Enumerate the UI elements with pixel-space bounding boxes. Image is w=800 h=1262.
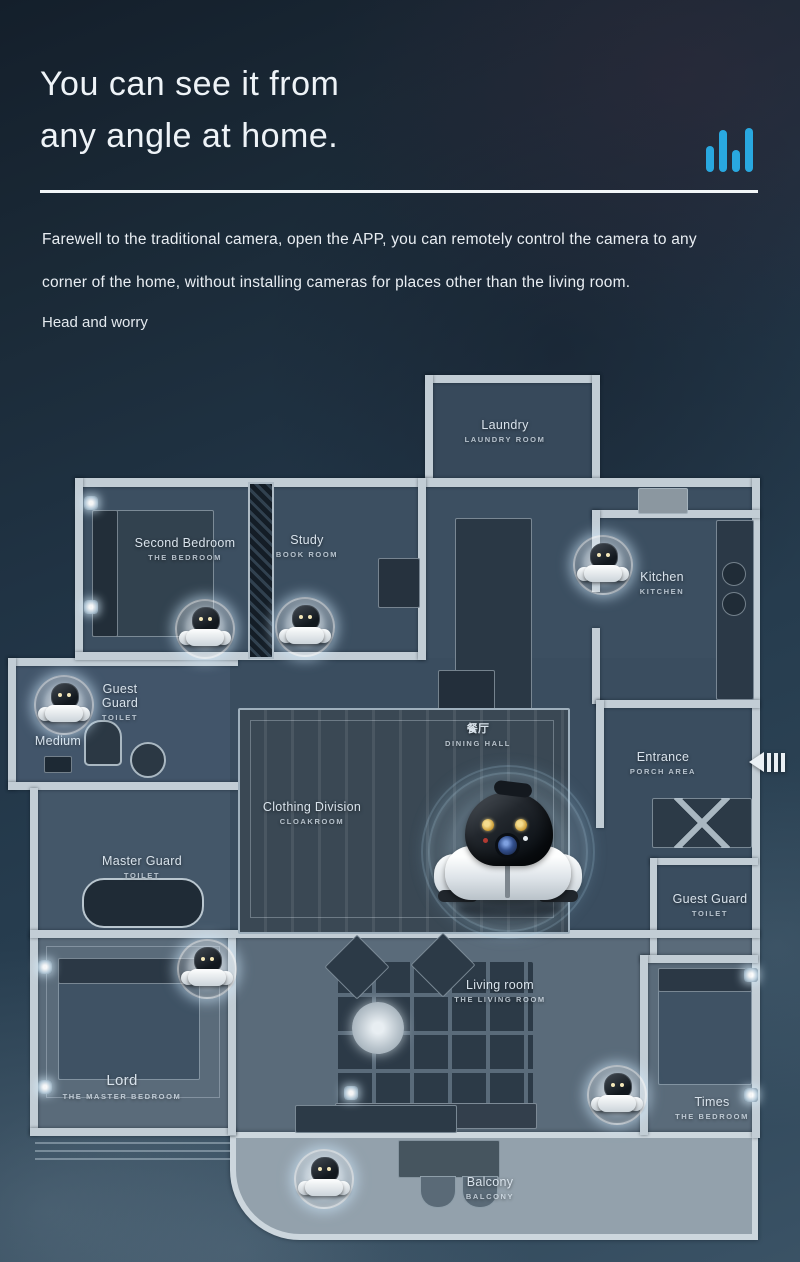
range-hood (638, 488, 688, 514)
closet-wall (248, 482, 274, 659)
room-label-dining: 餐厅DINING HALL (445, 720, 511, 748)
camera-robot-marker-balcony (294, 1149, 354, 1209)
room-label-guest-guard-left: Guest GuardTOILET (89, 682, 151, 722)
toilet (84, 720, 122, 766)
balcony-chair (420, 1176, 456, 1208)
room-label-living-room: Living roomTHE LIVING ROOM (454, 978, 546, 1004)
room-label-lord: LordTHE MASTER BEDROOM (63, 1072, 182, 1101)
featured-camera-robot (428, 772, 588, 932)
camera-robot-marker-master-bedroom (177, 939, 237, 999)
room-label-times: TimesTHE BEDROOM (675, 1095, 749, 1121)
page-title: You can see it from any angle at home. (40, 58, 339, 162)
note-text: Head and worry (42, 314, 148, 331)
desk-study (378, 558, 420, 608)
room-label-master-guard: Master GuardTOILET (102, 854, 182, 880)
room-label-entrance: EntrancePORCH AREA (630, 750, 696, 776)
robot-camera-head (465, 792, 553, 866)
balcony-planter (295, 1105, 457, 1133)
camera-lens-icon (495, 833, 520, 858)
floor-plan: LaundryLAUNDRY ROOM Second BedroomTHE BE… (0, 370, 800, 1262)
room-label-second-bedroom: Second BedroomTHE BEDROOM (135, 536, 236, 562)
camera-robot-marker-guest-toilet (34, 675, 94, 735)
entrance-cabinet (652, 798, 752, 848)
room-label-study: StudyBOOK ROOM (276, 533, 338, 559)
room-label-medium: Medium (35, 734, 81, 748)
washer (130, 742, 166, 778)
stove-burner (722, 562, 746, 586)
balcony-table (398, 1140, 500, 1178)
room-label-clothing-division: Clothing DivisionCLOAKROOM (263, 800, 361, 826)
bathtub (82, 878, 204, 928)
divider-line (40, 190, 758, 193)
floor-lamp (352, 1002, 404, 1054)
room-label-balcony: BalconyBALCONY (466, 1175, 514, 1201)
room-label-laundry: LaundryLAUNDRY ROOM (465, 418, 546, 444)
collapse-left-icon (749, 752, 785, 772)
room-label-kitchen: KitchenKITCHEN (640, 570, 685, 596)
stove-burner (722, 592, 746, 616)
camera-robot-marker-second-bedroom (175, 599, 235, 659)
room-label-guest-guard-right: Guest GuardTOILET (673, 892, 748, 918)
description-text: Farewell to the traditional camera, open… (42, 218, 762, 304)
camera-robot-marker-times-bedroom (587, 1065, 647, 1125)
signal-bars-icon (706, 126, 760, 172)
camera-robot-marker-study (275, 597, 335, 657)
camera-robot-marker-kitchen (573, 535, 633, 595)
